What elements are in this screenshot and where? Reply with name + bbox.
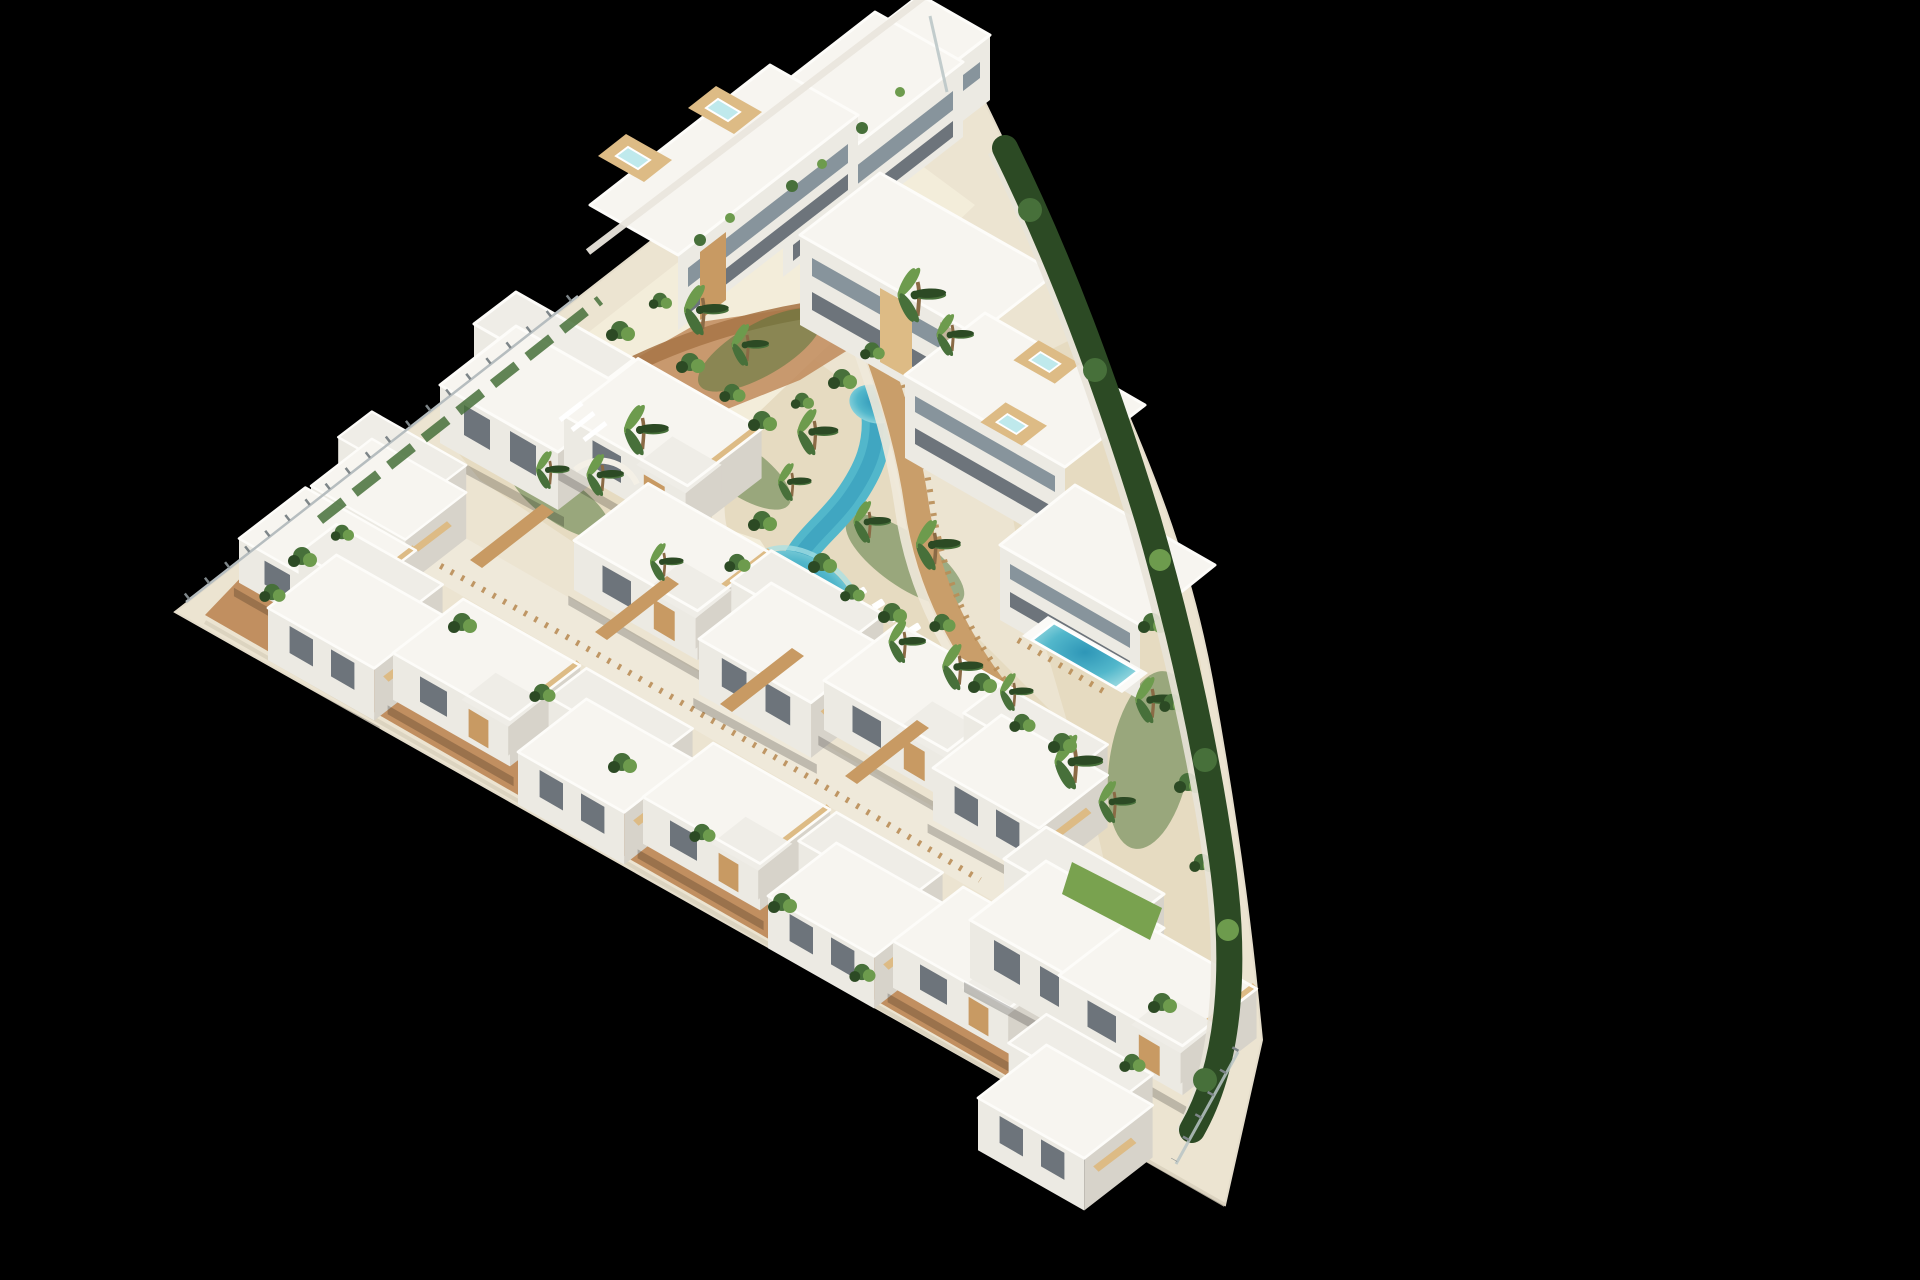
roof-planter [856, 122, 868, 134]
render-canvas [0, 0, 1920, 1280]
roof-planter [895, 87, 905, 97]
roof-planter [725, 213, 735, 223]
hedge-bush [1217, 919, 1239, 941]
hedge-bush [1193, 1068, 1217, 1092]
roof-planter [817, 159, 827, 169]
hedge-bush [1193, 748, 1217, 772]
hedge-bush [1149, 549, 1171, 571]
aerial-render [0, 0, 1920, 1280]
hedge-bush [1083, 358, 1107, 382]
roof-planter [786, 180, 798, 192]
hedge-bush [1018, 198, 1042, 222]
roof-planter [694, 234, 706, 246]
